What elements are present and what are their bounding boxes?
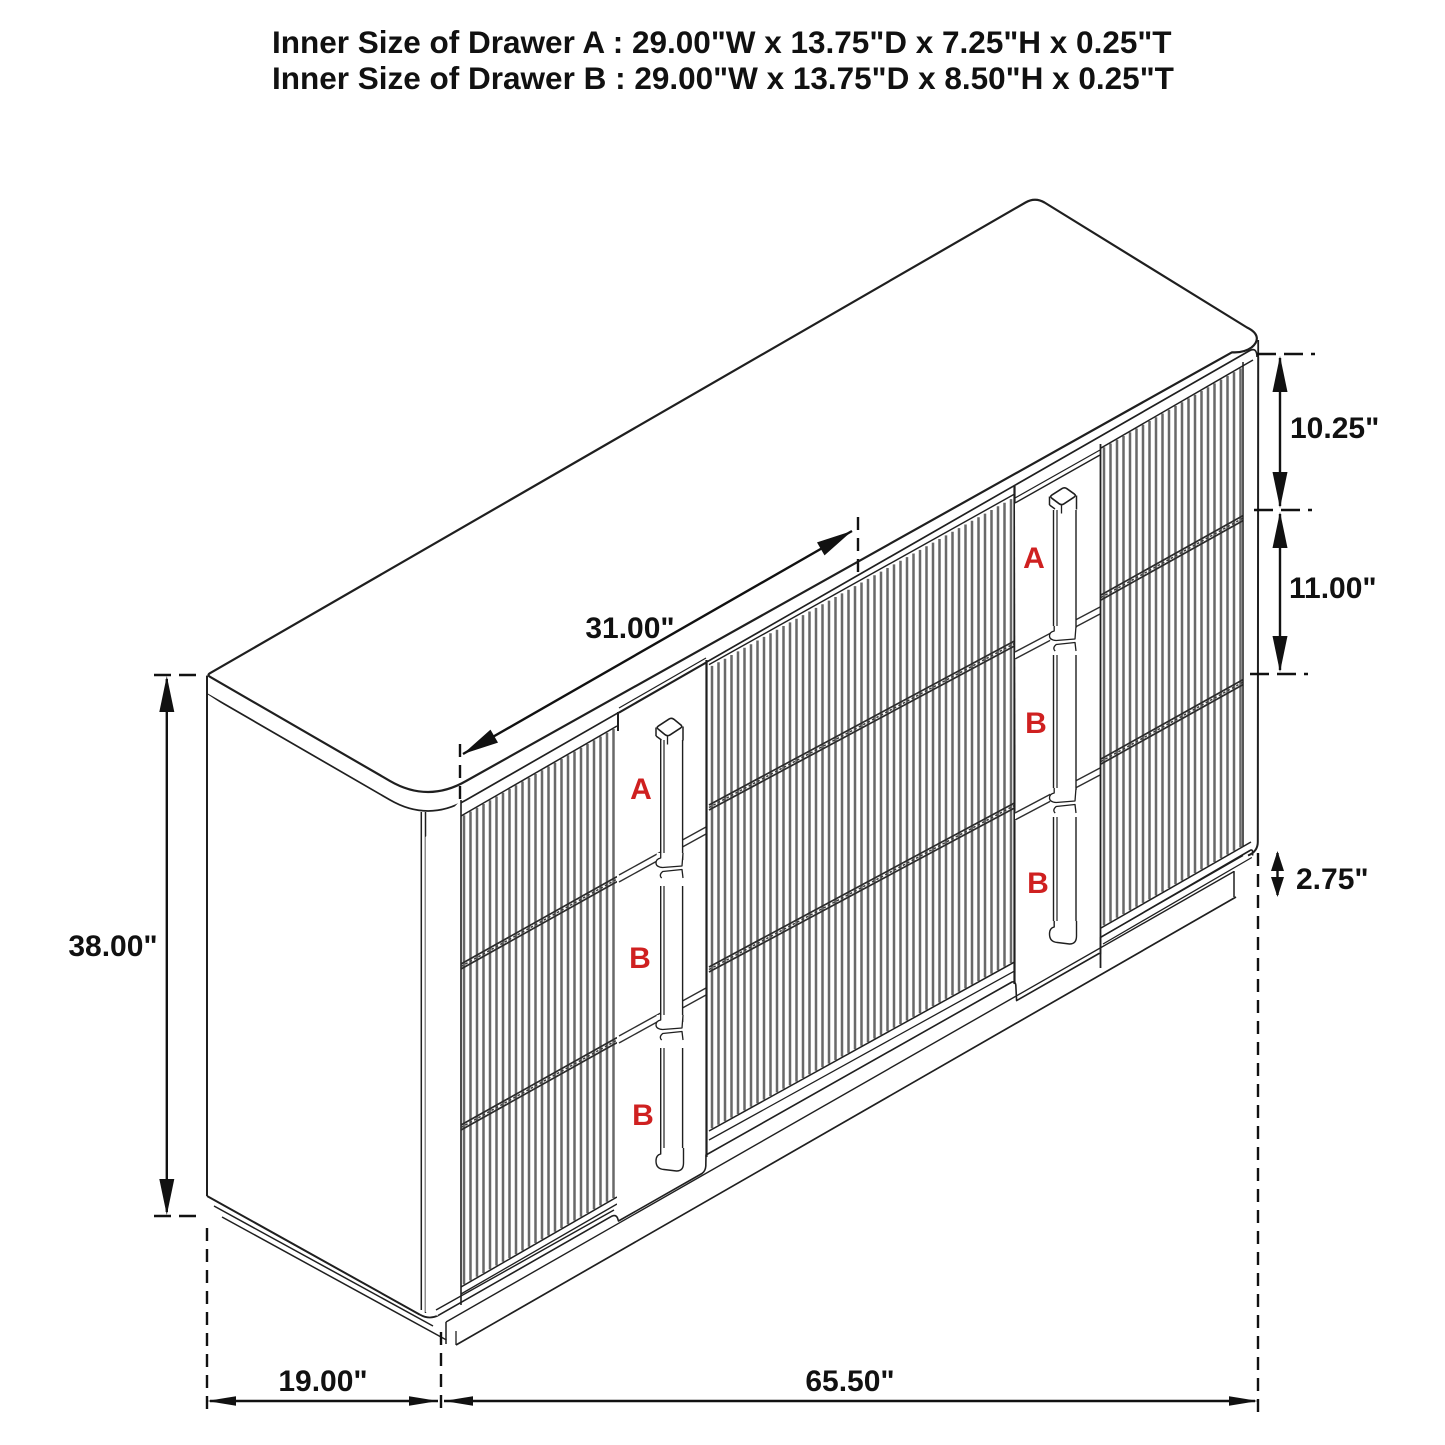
svg-text:2.75": 2.75" (1296, 863, 1369, 896)
svg-text:A: A (1023, 542, 1045, 575)
svg-text:19.00": 19.00" (278, 1365, 367, 1398)
svg-text:B: B (632, 1099, 654, 1132)
svg-text:10.25": 10.25" (1290, 412, 1379, 445)
svg-text:B: B (1027, 867, 1049, 900)
svg-text:65.50": 65.50" (805, 1365, 894, 1398)
svg-text:11.00": 11.00" (1289, 572, 1377, 605)
svg-text:Inner Size of Drawer A : 29.00: Inner Size of Drawer A : 29.00"W x 13.75… (272, 24, 1172, 60)
svg-text:B: B (1025, 707, 1047, 740)
svg-text:38.00": 38.00" (68, 930, 157, 963)
svg-text:31.00": 31.00" (585, 612, 674, 645)
svg-text:Inner Size of Drawer B : 29.00: Inner Size of Drawer B : 29.00"W x 13.75… (272, 60, 1174, 96)
svg-text:B: B (629, 942, 651, 975)
svg-text:A: A (630, 773, 652, 806)
